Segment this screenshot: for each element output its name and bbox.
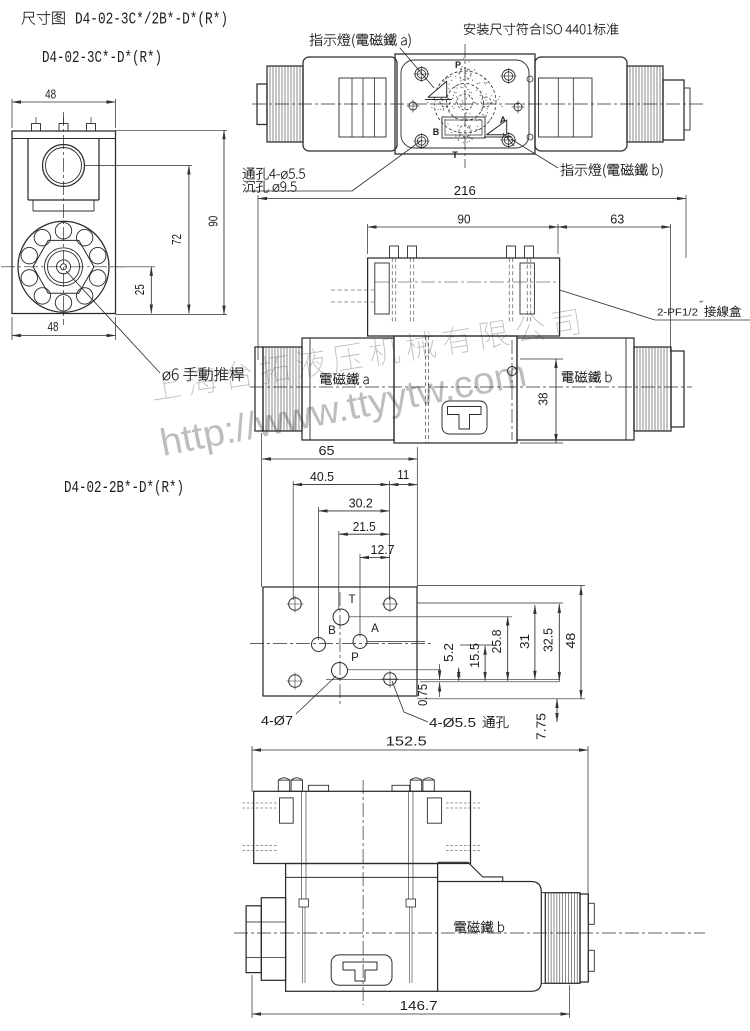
svg-text:63: 63 — [610, 212, 624, 227]
svg-text:40.5: 40.5 — [310, 469, 334, 484]
svg-text:48: 48 — [45, 87, 56, 102]
svg-text:48: 48 — [564, 633, 578, 649]
svg-text:15.5: 15.5 — [468, 643, 482, 668]
svg-text:D4-02-2B*-D*(R*): D4-02-2B*-D*(R*) — [64, 478, 184, 497]
svg-text:48: 48 — [48, 319, 59, 334]
svg-text:30.2: 30.2 — [349, 496, 373, 511]
svg-text:4-Ø7: 4-Ø7 — [261, 713, 293, 728]
svg-text:P: P — [351, 652, 359, 664]
svg-text:B: B — [433, 127, 440, 137]
svg-text:38: 38 — [536, 393, 551, 406]
svg-text:90: 90 — [206, 216, 221, 227]
svg-text:21.5: 21.5 — [353, 519, 376, 534]
svg-text:216: 216 — [454, 183, 476, 198]
svg-text:31: 31 — [518, 634, 532, 649]
svg-text:P: P — [455, 60, 461, 70]
svg-text:32.5: 32.5 — [542, 628, 556, 652]
svg-text:146.7: 146.7 — [400, 998, 438, 1013]
svg-text:2-PF1/2: 2-PF1/2 — [657, 308, 698, 319]
svg-text:4-Ø5.5: 4-Ø5.5 — [429, 715, 476, 730]
svg-text:5.2: 5.2 — [442, 643, 456, 662]
svg-text:A: A — [371, 623, 379, 635]
svg-text:D4-02-3C*-D*(R*): D4-02-3C*-D*(R*) — [42, 48, 162, 67]
svg-text:T: T — [452, 150, 458, 160]
svg-text:90: 90 — [458, 212, 471, 227]
svg-text:152.5: 152.5 — [386, 734, 427, 749]
svg-text:B: B — [328, 625, 336, 637]
svg-text:T: T — [348, 594, 355, 606]
svg-text:11: 11 — [397, 467, 409, 482]
svg-text:25: 25 — [132, 284, 147, 295]
svg-text:25.8: 25.8 — [490, 629, 504, 653]
svg-text:72: 72 — [169, 234, 184, 245]
svg-text:7.75: 7.75 — [535, 713, 549, 740]
svg-text:12.7: 12.7 — [371, 542, 395, 557]
svg-text:D4-02-3C*/2B*-D*(R*): D4-02-3C*/2B*-D*(R*) — [75, 10, 228, 29]
svg-text:65: 65 — [319, 443, 335, 458]
svg-text:0.75: 0.75 — [416, 684, 430, 706]
